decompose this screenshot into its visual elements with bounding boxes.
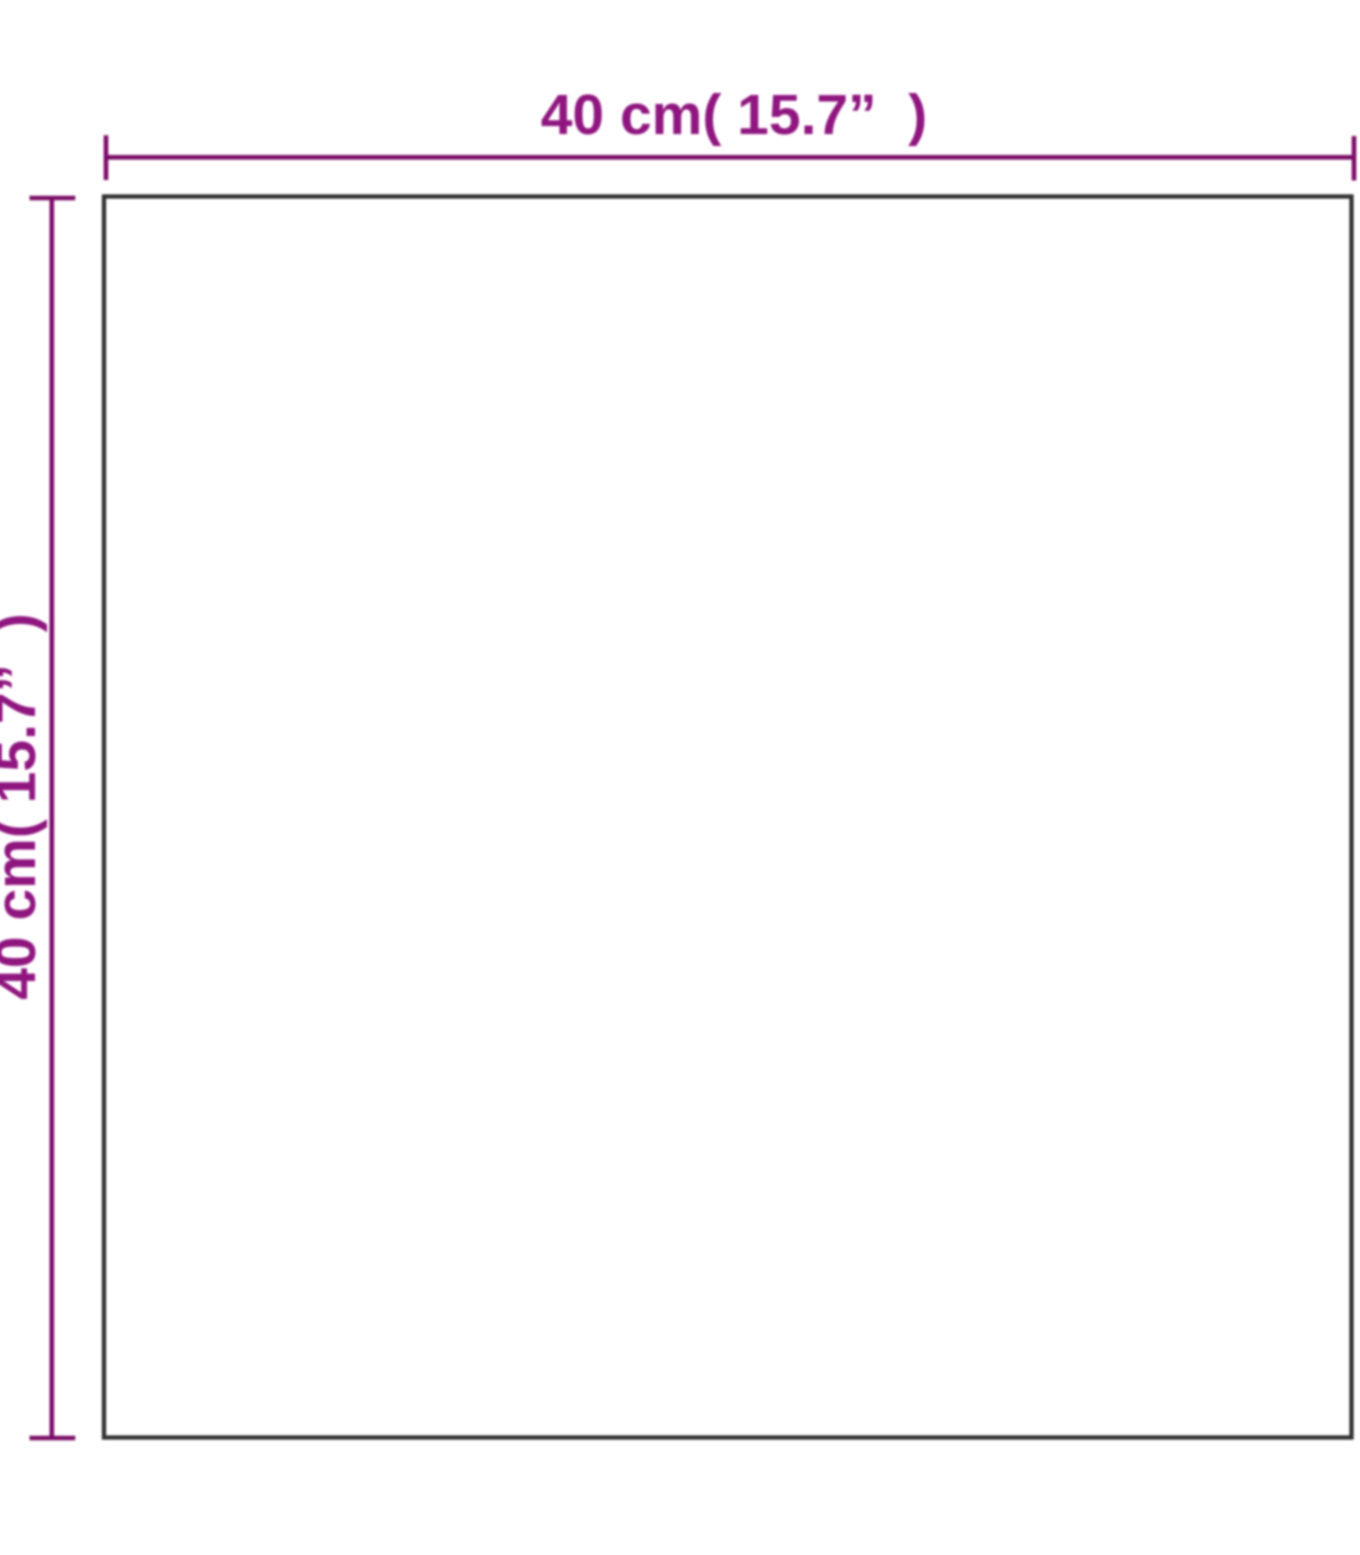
- svg-text:40 cm( 15.7” ): 40 cm( 15.7” ): [541, 83, 928, 147]
- svg-text:40 cm( 15.7” ): 40 cm( 15.7” ): [0, 613, 48, 1000]
